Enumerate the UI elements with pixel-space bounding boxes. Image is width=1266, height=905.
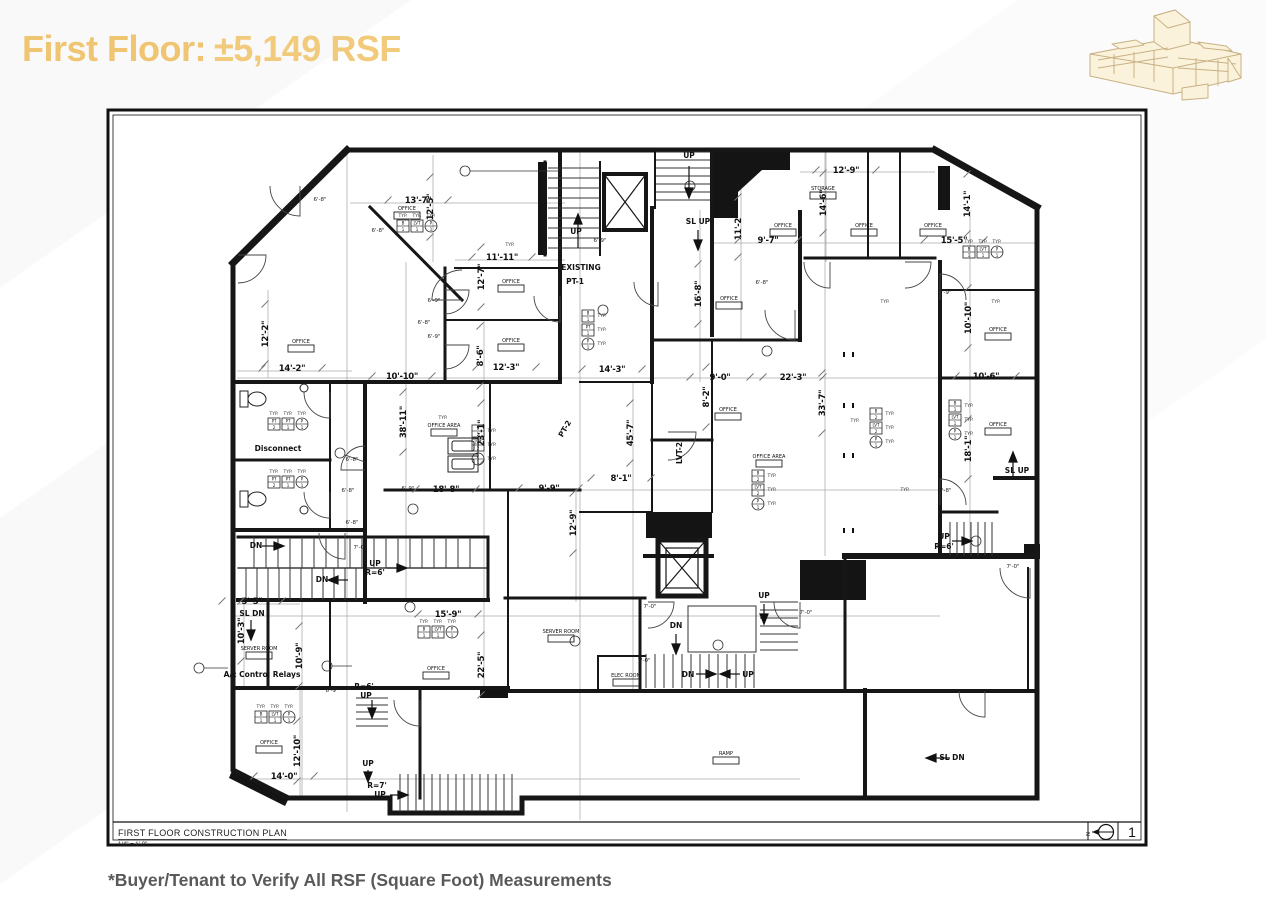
plan-label: DN (682, 670, 695, 679)
plan-label: 8'-1" (611, 474, 632, 484)
plan-label: 7'-0" (353, 545, 366, 551)
plan-label: 1 (451, 633, 454, 638)
plan-label: 1 (757, 505, 760, 510)
plan-label: R=6' (365, 568, 385, 577)
plan-label: DN (670, 621, 683, 630)
plan-label: 6'-9" (427, 334, 440, 340)
plan-label: 7'-0" (637, 658, 650, 664)
plan-label: 1 (260, 718, 263, 723)
plan-label: OFFICE (989, 422, 1007, 428)
plan-label: PT (586, 325, 591, 330)
plan-label: OFFICE (292, 339, 310, 345)
plan-label: 9'-9" (539, 484, 560, 494)
plan-label: B (954, 401, 957, 406)
plan-label: 1 (587, 331, 590, 336)
plan-label: TYP. (297, 411, 307, 417)
plan-label: 6'-8" (371, 228, 384, 234)
plan-label: 2 (875, 429, 878, 434)
plan-label: 12'-9" (569, 510, 579, 537)
plan-label: TYP. (426, 213, 436, 219)
plan-label: 2 (273, 483, 276, 488)
plan-label: 9'-7" (758, 236, 779, 246)
plan-scale: 1/4" = 1'-0" (118, 842, 287, 848)
plan-label: 6'-9" (593, 238, 606, 244)
plan-label: 1 (954, 435, 957, 440)
plan-label: SERVER ROOM (543, 629, 580, 635)
plan-label: 10'-3" (237, 618, 247, 645)
plan-label: LVT (952, 415, 960, 420)
plan-label: 11'-11" (486, 253, 518, 263)
plan-label: 2 (875, 415, 878, 420)
plan-label: TYP. (487, 456, 497, 462)
plan-label: TYP. (447, 619, 457, 625)
plan-label: RAMP (719, 751, 733, 757)
plan-label: 14'-1" (963, 191, 973, 218)
plan-label: LVT (755, 485, 763, 490)
plan-label: 1 (996, 253, 999, 258)
plan-label: 1 (287, 425, 290, 430)
plan-label: 6'-9" (938, 290, 951, 296)
plan-label: OFFICE AREA (428, 423, 461, 429)
plan-label: 10'-10" (386, 372, 418, 382)
plan-label: 6'-9" (401, 486, 414, 492)
plan-label: 6'-8" (341, 488, 354, 494)
plan-label: 1 (477, 460, 480, 465)
plan-label: 6'-8" (755, 280, 768, 286)
plan-label: TYP. (597, 341, 607, 347)
plan-label: 22'-5" (477, 652, 487, 679)
plan-label: 15'-5" (941, 236, 968, 246)
plan-label: OFFICE (398, 206, 416, 212)
plan-label: SL DN (939, 753, 964, 762)
plan-label: UP (570, 227, 582, 236)
plan-label: 1 (301, 425, 304, 430)
plan-label: TYP. (412, 213, 422, 219)
plan-label: 6'-8" (345, 520, 358, 526)
plan-label: 8'-2" (702, 387, 712, 408)
plan-label: 15'-9" (435, 610, 462, 620)
plan-label: B (260, 712, 263, 717)
plan-label: 10'-9" (295, 643, 305, 670)
plan-label: 7'-0" (799, 610, 812, 616)
plan-label: 14'-6" (819, 190, 829, 217)
plan-label: 7'-0" (643, 604, 656, 610)
north-label: N (1086, 832, 1092, 836)
plan-label: SL DN (239, 609, 264, 618)
plan-label: 12'-9" (833, 166, 860, 176)
plan-label: TYP. (297, 469, 307, 475)
plan-label: 1 (288, 718, 291, 723)
plan-label: B (477, 426, 480, 431)
plan-label: TYP. (885, 425, 895, 431)
plan-label: TYP. (964, 431, 974, 437)
plan-label: 38'-11" (399, 406, 409, 438)
plan-label: OFFICE (260, 740, 278, 746)
plan-label: 1 (587, 317, 590, 322)
plan-label: B (875, 409, 878, 414)
plan-label: 8'-6" (476, 346, 486, 367)
plan-label: OFFICE (427, 666, 445, 672)
plan-label: TYP. (767, 501, 777, 507)
plan-label: 6'-8" (345, 457, 358, 463)
plan-label: TYP. (505, 242, 515, 248)
plan-label: TYP. (269, 469, 279, 475)
plan-label: 2 (273, 425, 276, 430)
plan-label: DN (250, 541, 263, 550)
plan-label: 12'-2" (261, 321, 271, 348)
plan-label: 6'-9" (325, 688, 338, 694)
plan-label: B (587, 311, 590, 316)
plan-label: OFFICE (855, 223, 873, 229)
plan-label: TYP. (900, 487, 910, 493)
plan-label: 1 (301, 483, 304, 488)
plan-label: OFFICE (502, 338, 520, 344)
plan-label: 12'-7" (477, 264, 487, 291)
plan-label: UP (742, 670, 754, 679)
plan-label: PT (272, 477, 277, 482)
plan-label: OFFICE (720, 296, 738, 302)
plan-label: 1 (587, 345, 590, 350)
sheet-number: 1 (1120, 824, 1144, 840)
plan-label: TYP. (487, 442, 497, 448)
plan-label: 14'-2" (279, 364, 306, 374)
plan-label: LVT (272, 712, 280, 717)
plan-label: 1 (954, 421, 957, 426)
plan-label: UP (374, 790, 386, 799)
plan-label: TYP. (438, 415, 448, 421)
disclaimer-text: *Buyer/Tenant to Verify All RSF (Square … (108, 870, 612, 891)
plan-label: OFFICE (502, 279, 520, 285)
plan-label: 7'-0" (1006, 564, 1019, 570)
plan-label: TYP. (880, 299, 890, 305)
plan-label: DN (316, 575, 329, 584)
plan-label: 2 (477, 432, 480, 437)
plan-label: LVT (414, 221, 422, 226)
plan-label: 1 (982, 253, 985, 258)
plan-label: 10'-10" (964, 302, 974, 334)
plan-label: EXISTING (561, 263, 600, 272)
plan-label: 1 (875, 443, 878, 448)
plan-label: 1 (416, 227, 419, 232)
plan-label: 1 (287, 483, 290, 488)
plan-label: TYP. (964, 239, 974, 245)
plan-label: TYP. (283, 411, 293, 417)
plan-label: LVT (435, 627, 443, 632)
plan-label: TYP. (597, 313, 607, 319)
plan-label: 33'-7" (818, 390, 828, 417)
plan-label: 18'-1" (964, 436, 974, 463)
plan-label: 5'-5" (242, 597, 263, 607)
plan-label: 2 (757, 477, 760, 482)
plan-label: LVT (980, 247, 988, 252)
plan-label: UP (369, 559, 381, 568)
plan-label: TYP. (284, 704, 294, 710)
plan-label: LVT-2 (675, 442, 684, 464)
plan-label: 10'-6" (973, 372, 1000, 382)
plan-label: 6'-8" (938, 488, 951, 494)
plan-label: TYP. (256, 704, 266, 710)
plan-label: TYP. (487, 428, 497, 434)
plan-label: TYP. (269, 411, 279, 417)
plan-label: TYP. (978, 239, 988, 245)
plan-label: 1 (437, 633, 440, 638)
plan-label: PT (272, 419, 277, 424)
plan-label: TYP. (850, 418, 860, 424)
plan-label: ELEC ROOM (611, 673, 641, 679)
plan-label: 1 (402, 227, 405, 232)
plan-label: UP (938, 532, 950, 541)
plan-label: Disconnect (255, 444, 302, 453)
plan-label: PT (286, 419, 291, 424)
plan-label: B (402, 221, 405, 226)
page-canvas: First Floor:±5,149 RSF (0, 0, 1266, 905)
titleblock: FIRST FLOOR CONSTRUCTION PLAN 1/4" = 1'-… (118, 823, 287, 848)
plan-label: 1 (430, 227, 433, 232)
plan-label: R=6' (934, 542, 954, 551)
plan-label: OFFICE AREA (753, 454, 786, 460)
plan-label: OFFICE (924, 223, 942, 229)
plan-label: TYP. (885, 411, 895, 417)
plan-label: SL UP (1005, 466, 1030, 475)
plan-label: PT-1 (566, 277, 584, 286)
plan-label: TYP. (964, 403, 974, 409)
plan-label: 6'-8" (313, 197, 326, 203)
plan-label: B (968, 247, 971, 252)
plan-label: TYP. (885, 439, 895, 445)
plan-label: 14'-3" (599, 365, 626, 375)
plan-label: SL UP (686, 217, 711, 226)
plan-label: TYP. (419, 619, 429, 625)
plan-label: TYP. (964, 417, 974, 423)
plan-label: R=7' (367, 781, 387, 790)
plan-label: LVT (475, 440, 483, 445)
plan-label: 9'-0" (710, 373, 731, 383)
plan-label: 2 (477, 446, 480, 451)
plan-label: UP (683, 151, 695, 160)
plan-label: TYP. (283, 469, 293, 475)
plan-label: 1 (274, 718, 277, 723)
plan-title: FIRST FLOOR CONSTRUCTION PLAN (118, 828, 287, 840)
plan-label: B (423, 627, 426, 632)
plan-label: TYP. (433, 619, 443, 625)
plan-label: 11'-2" (734, 214, 744, 241)
plan-label: 6'-9" (427, 298, 440, 304)
plan-label: 16'-8" (694, 281, 704, 308)
plan-label: 2 (757, 491, 760, 496)
plan-label: TYP. (767, 487, 777, 493)
plan-label: A/c Control Relays (224, 670, 301, 679)
plan-label: 1 (968, 253, 971, 258)
plan-label: UP (360, 691, 372, 700)
plan-label: B (757, 471, 760, 476)
plan-label: PT (286, 477, 291, 482)
plan-label: TYP. (597, 327, 607, 333)
plan-label: TYP. (270, 704, 280, 710)
plan-label: SERVER ROOM (241, 646, 278, 652)
plan-label: UP (362, 759, 374, 768)
floor-plan-sheet: N (0, 0, 1266, 905)
plan-label: R=6' (354, 682, 374, 691)
plan-label: 12'-3" (493, 363, 520, 373)
plan-label: TYP. (991, 299, 1001, 305)
plan-label: TYP. (398, 213, 408, 219)
plan-label: STORAGE (811, 186, 835, 192)
plan-label: TYP. (992, 239, 1002, 245)
plan-label: 6'-8" (417, 320, 430, 326)
plan-label: UP (758, 591, 770, 600)
plan-label: OFFICE (719, 407, 737, 413)
plan-label: 12'-10" (293, 735, 303, 767)
plan-label: TYP. (767, 473, 777, 479)
plan-label: 22'-3" (780, 373, 807, 383)
plan-label: 45'-7" (626, 420, 636, 447)
plan-label: 18'-8" (433, 485, 460, 495)
plan-label: 1 (954, 407, 957, 412)
plan-label: OFFICE (989, 327, 1007, 333)
plan-label: 1 (423, 633, 426, 638)
plan-label: 14'-0" (271, 772, 298, 782)
plan-label: LVT (873, 423, 881, 428)
plan-label: OFFICE (774, 223, 792, 229)
